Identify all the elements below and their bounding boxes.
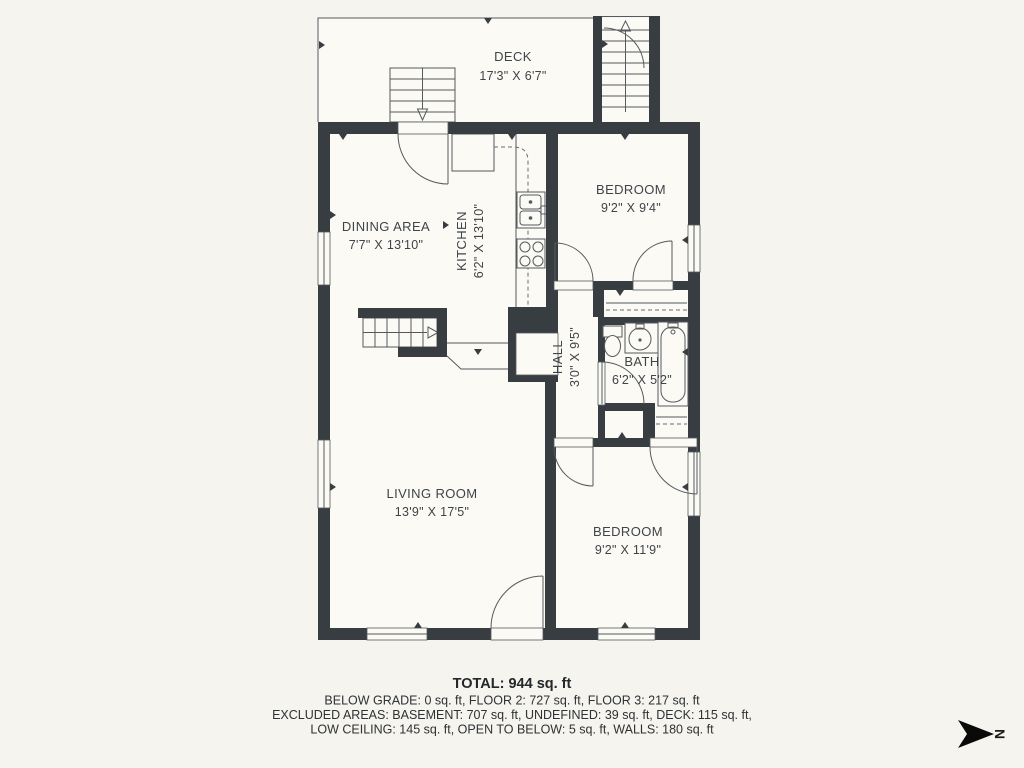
room-label-hall: HALL <box>550 340 565 374</box>
room-label-deck: DECK <box>494 49 532 64</box>
room-label-bedroom1: BEDROOM <box>596 182 666 197</box>
room-dims-deck: 17'3" X 6'7" <box>479 69 546 83</box>
room-dims-kitchen: 6'2" X 13'10" <box>472 204 486 279</box>
area-summary: TOTAL: 944 sq. ft BELOW GRADE: 0 sq. ft,… <box>272 676 752 737</box>
floor-plan: DECK 17'3" X 6'7" DINING AREA 7'7" X 13'… <box>0 0 1024 768</box>
window <box>598 628 655 640</box>
kitchen-sink <box>517 192 548 228</box>
window <box>367 628 427 640</box>
room-label-bath: BATH <box>624 354 659 369</box>
compass-north-label: N <box>992 729 1008 739</box>
room-dims-hall: 3'0" X 9'5" <box>568 327 582 387</box>
area-line-3: LOW CEILING: 145 sq. ft, OPEN TO BELOW: … <box>310 723 714 737</box>
room-dims-bedroom1: 9'2" X 9'4" <box>601 201 661 215</box>
window <box>318 232 330 285</box>
room-dims-living: 13'9" X 17'5" <box>395 505 470 519</box>
room-dims-bath: 6'2" X 5'2" <box>612 373 672 387</box>
room-dims-dining: 7'7" X 13'10" <box>349 238 424 252</box>
deck-stairs <box>390 68 455 122</box>
room-label-kitchen: KITCHEN <box>454 211 469 271</box>
area-line-2: EXCLUDED AREAS: BASEMENT: 707 sq. ft, UN… <box>272 708 752 722</box>
bath-sink <box>625 323 658 353</box>
room-label-dining: DINING AREA <box>342 219 430 234</box>
room-label-bedroom2: BEDROOM <box>593 524 663 539</box>
toilet <box>603 326 622 357</box>
north-compass-icon: N <box>958 720 1008 748</box>
area-line-1: BELOW GRADE: 0 sq. ft, FLOOR 2: 727 sq. … <box>324 694 700 708</box>
kitchen-counter <box>452 134 494 171</box>
window <box>318 440 330 508</box>
floor-plan-page: DECK 17'3" X 6'7" DINING AREA 7'7" X 13'… <box>0 0 1024 768</box>
room-dims-bedroom2: 9'2" X 11'9" <box>595 543 661 557</box>
window <box>688 452 700 516</box>
window <box>688 225 700 272</box>
stove <box>517 239 545 268</box>
room-label-living: LIVING ROOM <box>386 486 477 501</box>
total-area-text: TOTAL: 944 sq. ft <box>453 676 572 692</box>
bathtub <box>658 322 688 406</box>
